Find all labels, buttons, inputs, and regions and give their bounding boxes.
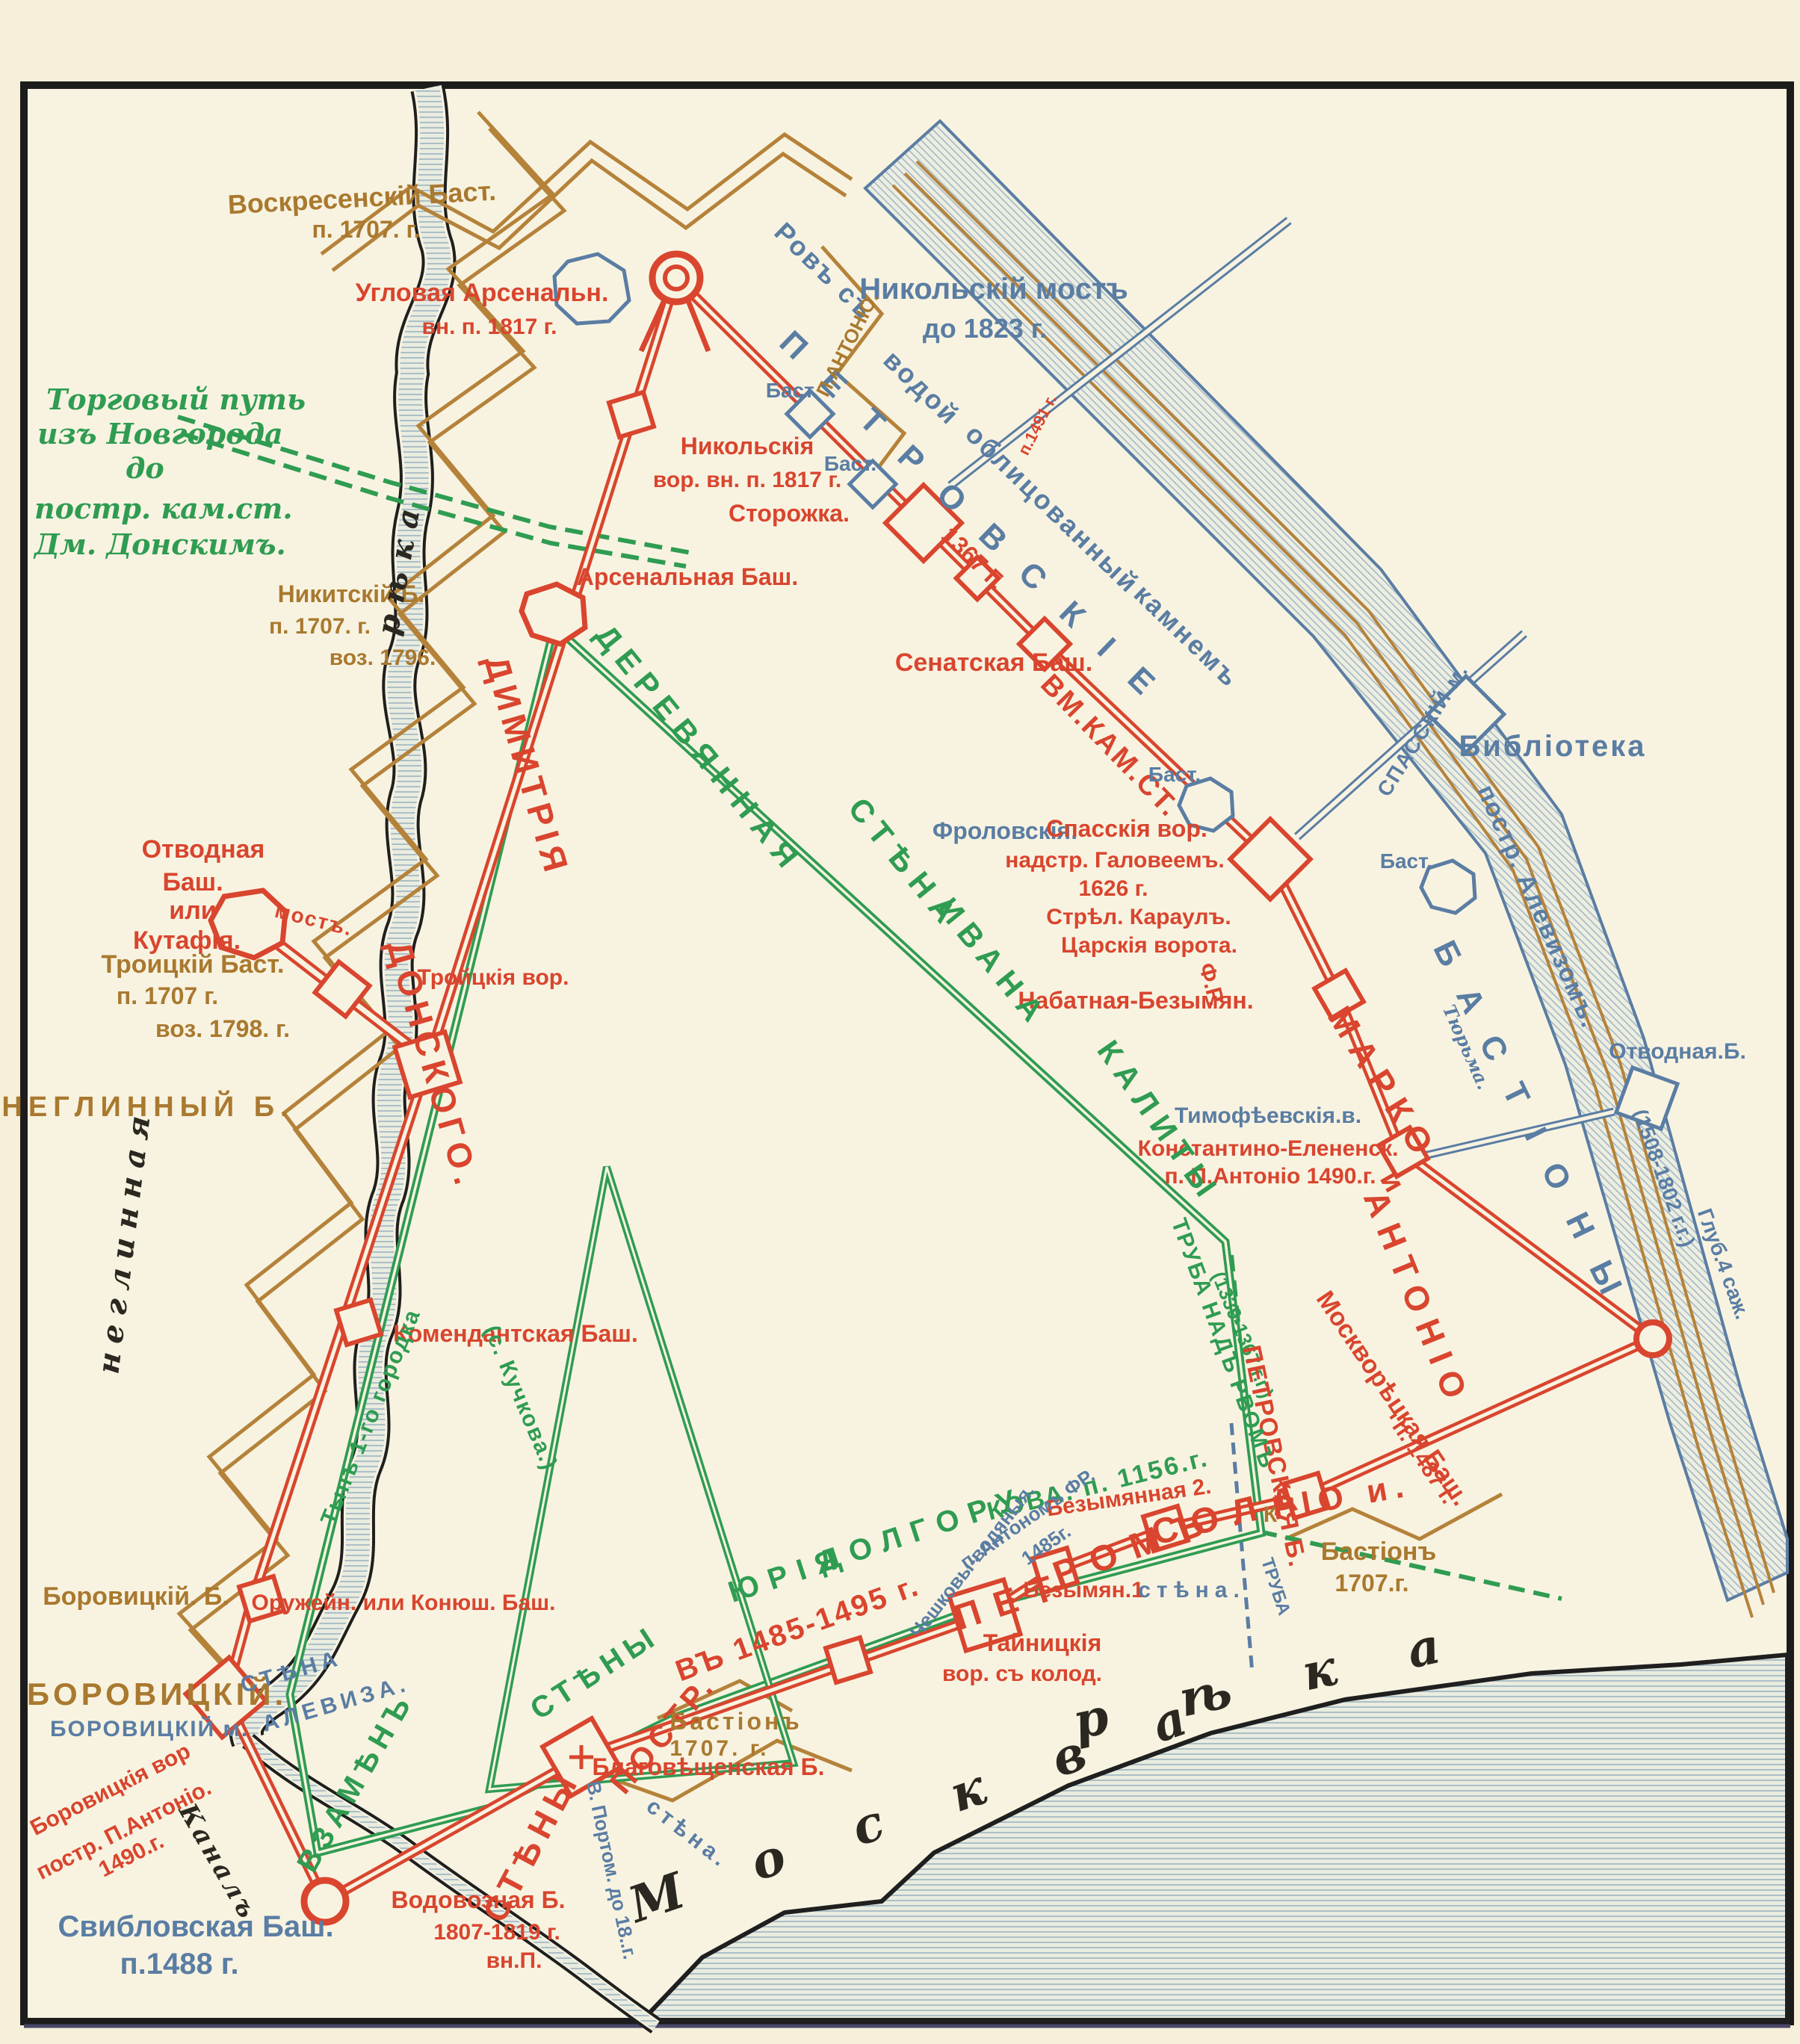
map-label: Торговый путь (46, 383, 306, 416)
map-label: Спасскія вор. (1046, 815, 1207, 842)
map-label: Водовозная Б. (392, 1886, 566, 1913)
map-label: Библіотека (1459, 730, 1646, 763)
map-label: Боровицкій. Б. (43, 1582, 229, 1611)
map-label: Стрѣл. Караулъ. (1046, 905, 1231, 929)
map-label: надстр. Галовеемъ. (1005, 848, 1225, 873)
map-label: Благовѣщенская Б. (593, 1753, 825, 1780)
map-label: п. 1707. г. (312, 216, 420, 243)
historical-map-page: { "header": { "table_label": "Таблица II… (0, 0, 1800, 2044)
map-label: БОРОВИЦКІЙ м. (50, 1716, 249, 1741)
map-label: до (126, 451, 164, 485)
map-label: Тайницкія (983, 1629, 1101, 1656)
map-label: Комендантская Баш. (393, 1320, 638, 1347)
map-label: Баш. (162, 868, 223, 896)
map-label: Никольскій мостъ (859, 273, 1128, 306)
map-label: Сторожка. (729, 500, 850, 527)
map-label: вн.П. (486, 1948, 542, 1973)
map-label: Баст. (1148, 763, 1201, 786)
map-label: Бастіонъ (1321, 1537, 1436, 1566)
arsenalnaya-tower (522, 584, 585, 644)
map-label: Троицкій Баст. (102, 950, 285, 979)
map-label: Царскія ворота. (1061, 933, 1237, 958)
map-label: Никольскія (681, 433, 814, 459)
map-label: Баст. (766, 379, 818, 402)
map-label: п.1488 г. (120, 1948, 238, 1980)
map-label: вор. вн. п. 1817 г. (653, 468, 841, 492)
map-label: воз. 1798. г. (155, 1015, 290, 1042)
map-label: К (1264, 1502, 1278, 1527)
map-label: Свибловская Баш. (58, 1910, 333, 1943)
map-label: вор. съ колод. (942, 1661, 1102, 1686)
map-label: постр. кам.ст. (34, 492, 293, 525)
map-label: воз. 1796. (330, 645, 436, 670)
map-label: вн. п. 1817 г. (422, 315, 557, 339)
map-label: Бастіонъ (669, 1708, 802, 1735)
map-label: Отводная.Б. (1609, 1039, 1746, 1064)
map-label: п. 1707 г. (117, 982, 218, 1009)
map-label: Сенатская Баш. (895, 648, 1092, 677)
map-label: Тройцкія вор. (418, 965, 569, 990)
map-label: 1807-1819 г. (433, 1920, 560, 1945)
map-label: п. 1707. г. (269, 614, 371, 639)
map-label: до 1823 г. (923, 313, 1047, 344)
map-label: Баст. (1380, 849, 1432, 873)
map-label: или (169, 896, 216, 925)
kremlin-map: Воскресенскій Баст.п. 1707. г.Угловая Ар… (0, 0, 1800, 2044)
map-label: стѣна. (1138, 1578, 1246, 1602)
map-label: 1626 г. (1079, 876, 1148, 901)
map-label: 1707.г. (1334, 1570, 1408, 1597)
map-label: Оружейн. или Конюш. Баш. (251, 1591, 555, 1615)
map-label: Угловая Арсенальн. (356, 279, 609, 307)
map-label: Тимофѣевскія.в. (1175, 1103, 1361, 1128)
map-label: Арсенальная Баш. (577, 563, 798, 590)
map-label: Отводная (142, 835, 265, 864)
map-label: изъ Новгорода (37, 417, 283, 450)
map-label: Дм. Донскимъ. (33, 527, 286, 561)
map-label: Безымян.1 (1023, 1578, 1144, 1602)
